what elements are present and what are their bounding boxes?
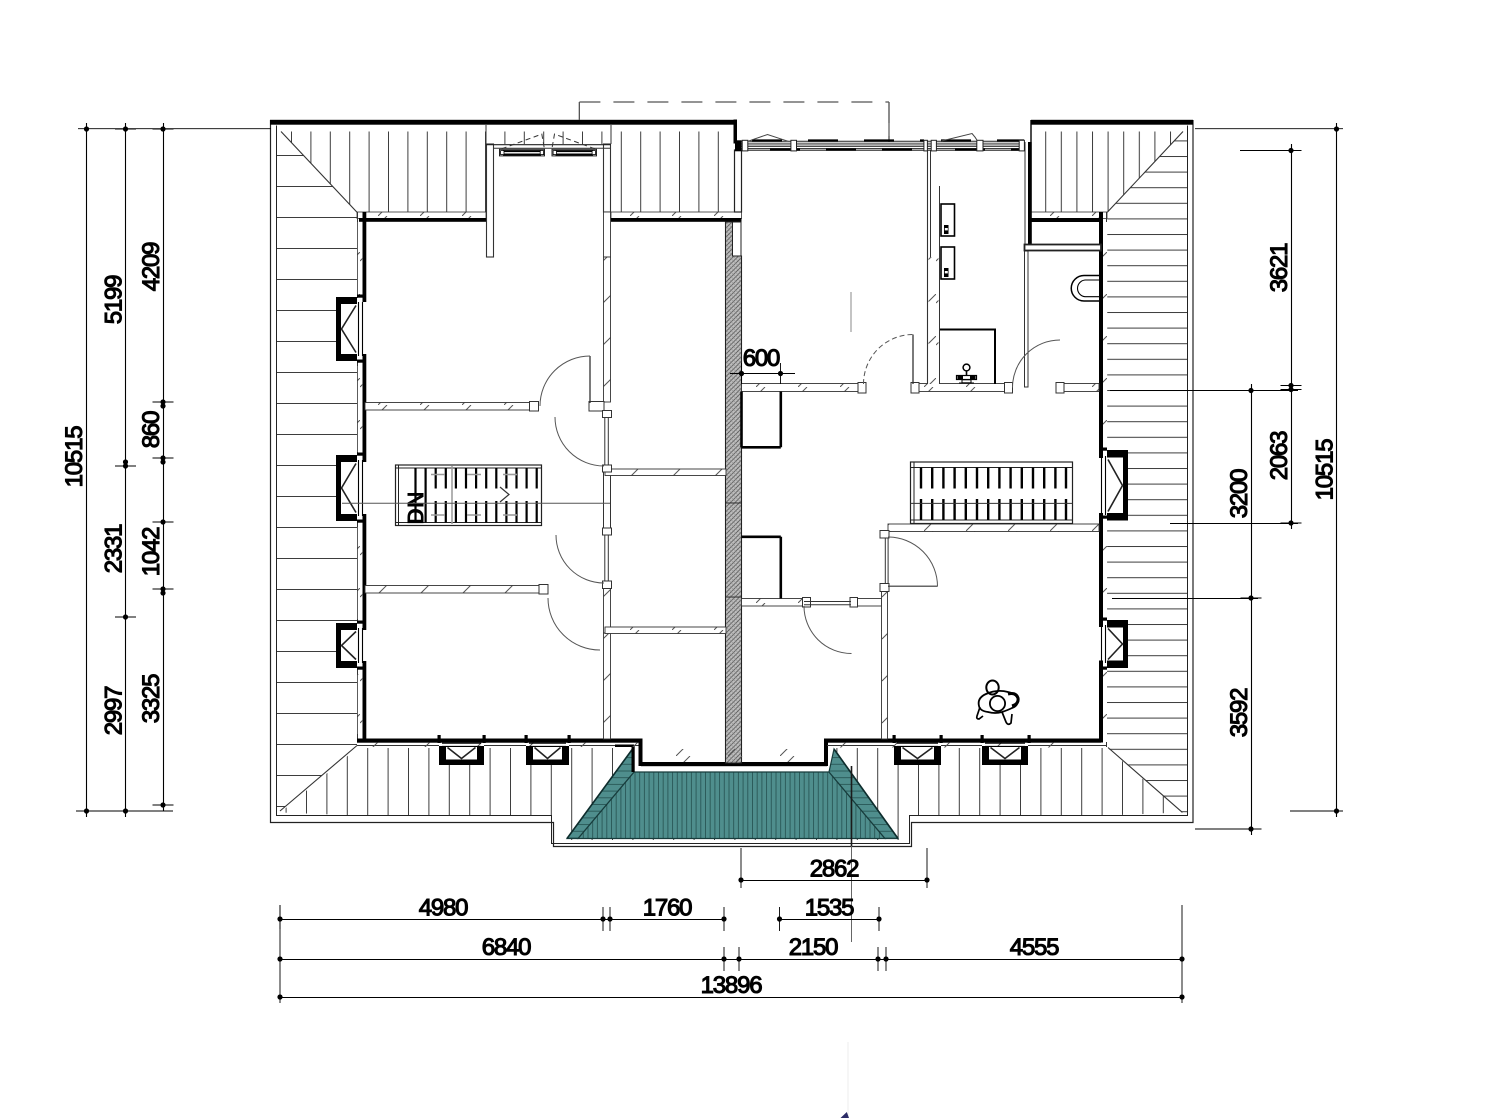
svg-text:3325: 3325 <box>138 674 165 723</box>
svg-text:2997: 2997 <box>101 686 128 735</box>
svg-text:2331: 2331 <box>101 524 128 573</box>
svg-text:1535: 1535 <box>805 895 854 922</box>
svg-text:600: 600 <box>743 345 780 372</box>
svg-text:4209: 4209 <box>138 242 165 291</box>
svg-text:2150: 2150 <box>789 934 838 961</box>
svg-text:10515: 10515 <box>61 426 88 488</box>
svg-text:5199: 5199 <box>101 275 128 324</box>
svg-text:860: 860 <box>138 411 165 448</box>
svg-text:DN: DN <box>403 491 429 524</box>
svg-text:6840: 6840 <box>482 934 531 961</box>
svg-text:3200: 3200 <box>1226 469 1253 518</box>
svg-text:1760: 1760 <box>643 895 692 922</box>
svg-text:4980: 4980 <box>419 895 468 922</box>
svg-text:2063: 2063 <box>1266 431 1293 480</box>
svg-text:1042: 1042 <box>138 527 165 576</box>
svg-text:3621: 3621 <box>1266 243 1293 292</box>
svg-text:3592: 3592 <box>1226 688 1253 737</box>
svg-text:4555: 4555 <box>1010 934 1059 961</box>
svg-text:13896: 13896 <box>701 972 763 999</box>
svg-text:10515: 10515 <box>1312 439 1339 501</box>
svg-text:2862: 2862 <box>810 856 859 883</box>
